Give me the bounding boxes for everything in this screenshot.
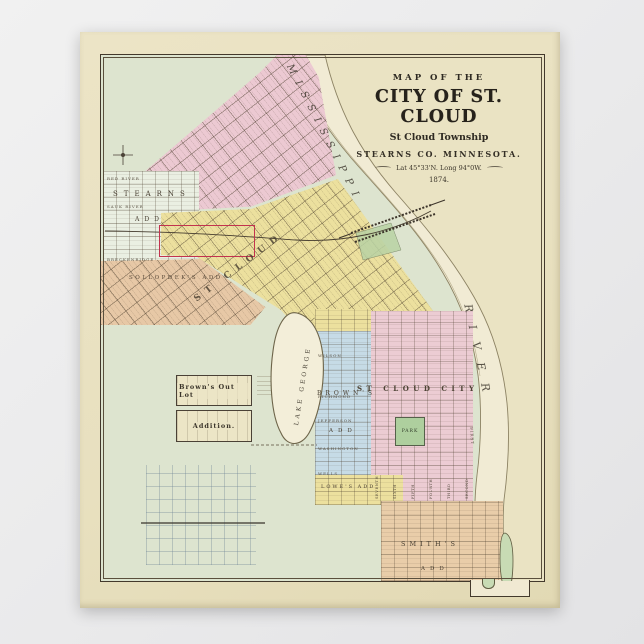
title-city-of-st-cloud: CITY OF ST. CLOUD [339,87,539,127]
red-highlight-box [159,225,255,257]
street-richmond: RICHMOND [318,395,351,399]
river-island-shape [500,533,513,581]
title-county-state: STEARNS CO. MINNESOTA. [339,149,539,159]
compass-icon [113,145,133,165]
street-seventh: SEVENTH [376,476,380,499]
smiths-add-sub: ADD [421,567,449,573]
street-first: FIRST [469,427,474,445]
stearns-add-sub: ADD [135,217,164,223]
photo-background: PARK Brown's Out Lot Addition. [0,0,644,644]
stearns-add-label: STEARNS [113,191,191,198]
street-fourth: FOURTH [430,479,434,499]
title-township: St Cloud Township [339,132,539,143]
street-breckenridge: BRECKENRIDGE [107,258,154,262]
sollopdek-label: SOLLOPDEK'S ADD [129,276,223,282]
street-wells: WELLS [318,472,338,476]
street-fifth: FIFTH [412,484,416,499]
smiths-add-label: SMITH'S [401,541,459,548]
street-third: THIRD [448,483,452,499]
title-year: 1874. [339,176,539,184]
street-red-river: RED RIVER [107,177,140,181]
browns-add-sub: ADD [329,429,357,435]
st-cloud-city-label: ST CLOUD CITY [357,385,478,392]
street-sixth: SIXTH [394,484,398,499]
street-jefferson: JEFFERSON [318,419,353,423]
street-sauk-river: SAUK RIVER [107,205,144,209]
title-map-of-the: MAP OF THE [339,73,539,83]
map-poster: PARK Brown's Out Lot Addition. [80,32,560,608]
map-frame: PARK Brown's Out Lot Addition. [100,54,545,582]
street-washington: WASHINGTON [318,447,359,451]
street-wilson: WILSON [318,354,342,358]
river-border-notch [470,580,530,597]
lowes-add-label: LOWE'S ADD [321,485,375,490]
title-block: MAP OF THE CITY OF ST. CLOUD St Cloud To… [339,73,539,184]
street-second: SECOND [466,479,470,499]
title-lat-long: Lat 45°33'N. Long 94°0W. [339,164,539,172]
